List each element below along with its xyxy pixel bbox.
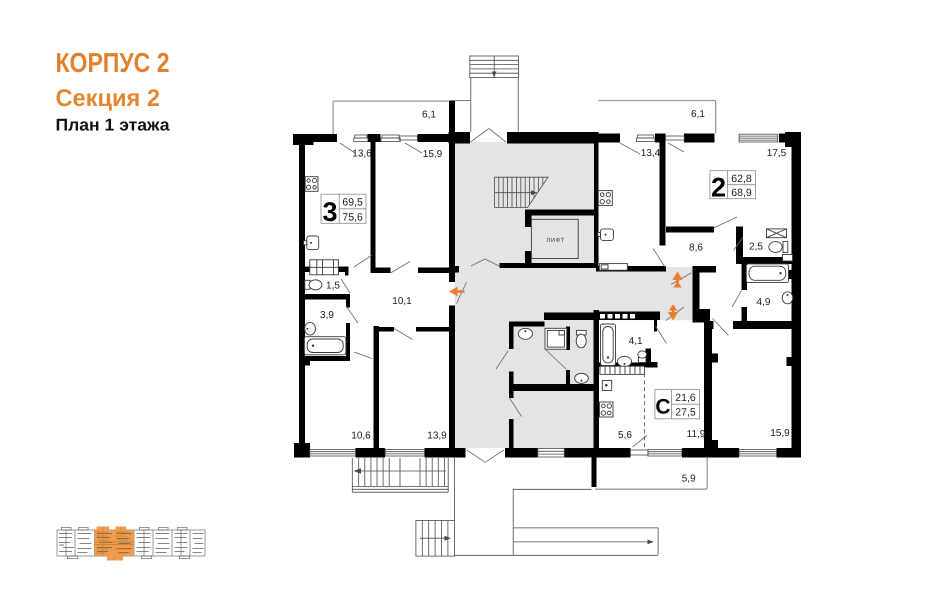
svg-text:2,5: 2,5 — [749, 241, 763, 252]
svg-text:5,9: 5,9 — [682, 474, 696, 485]
svg-text:С: С — [655, 395, 670, 418]
svg-text:17,5: 17,5 — [767, 148, 787, 159]
svg-text:11,9: 11,9 — [687, 429, 706, 440]
svg-text:3,9: 3,9 — [320, 310, 334, 321]
svg-text:27,5: 27,5 — [675, 407, 696, 419]
svg-text:4,9: 4,9 — [757, 297, 771, 308]
svg-text:10,6: 10,6 — [351, 431, 371, 442]
svg-text:6,1: 6,1 — [691, 109, 705, 120]
svg-text:69,5: 69,5 — [342, 197, 363, 209]
svg-text:15,9: 15,9 — [423, 149, 443, 160]
svg-text:15,9: 15,9 — [770, 428, 790, 439]
svg-text:62,8: 62,8 — [731, 173, 752, 185]
svg-text:6,1: 6,1 — [422, 110, 436, 121]
svg-text:5,6: 5,6 — [618, 430, 632, 441]
svg-text:10,1: 10,1 — [392, 296, 412, 307]
svg-text:68,9: 68,9 — [731, 187, 752, 199]
svg-text:21,6: 21,6 — [675, 392, 696, 404]
svg-text:13,4: 13,4 — [641, 148, 661, 159]
svg-text:КОРПУС 2: КОРПУС 2 — [56, 47, 170, 78]
svg-text:75,6: 75,6 — [342, 211, 363, 223]
svg-text:8,6: 8,6 — [689, 243, 703, 254]
svg-text:13,6: 13,6 — [352, 149, 372, 160]
svg-text:ЛИФТ: ЛИФТ — [546, 237, 565, 244]
svg-text:3: 3 — [322, 197, 337, 227]
svg-text:1,5: 1,5 — [326, 280, 340, 291]
svg-text:13,9: 13,9 — [427, 431, 447, 442]
svg-text:2: 2 — [711, 173, 726, 203]
svg-text:4,1: 4,1 — [629, 336, 643, 347]
svg-text:План 1 этажа: План 1 этажа — [56, 115, 171, 134]
svg-text:Секция 2: Секция 2 — [56, 85, 161, 112]
